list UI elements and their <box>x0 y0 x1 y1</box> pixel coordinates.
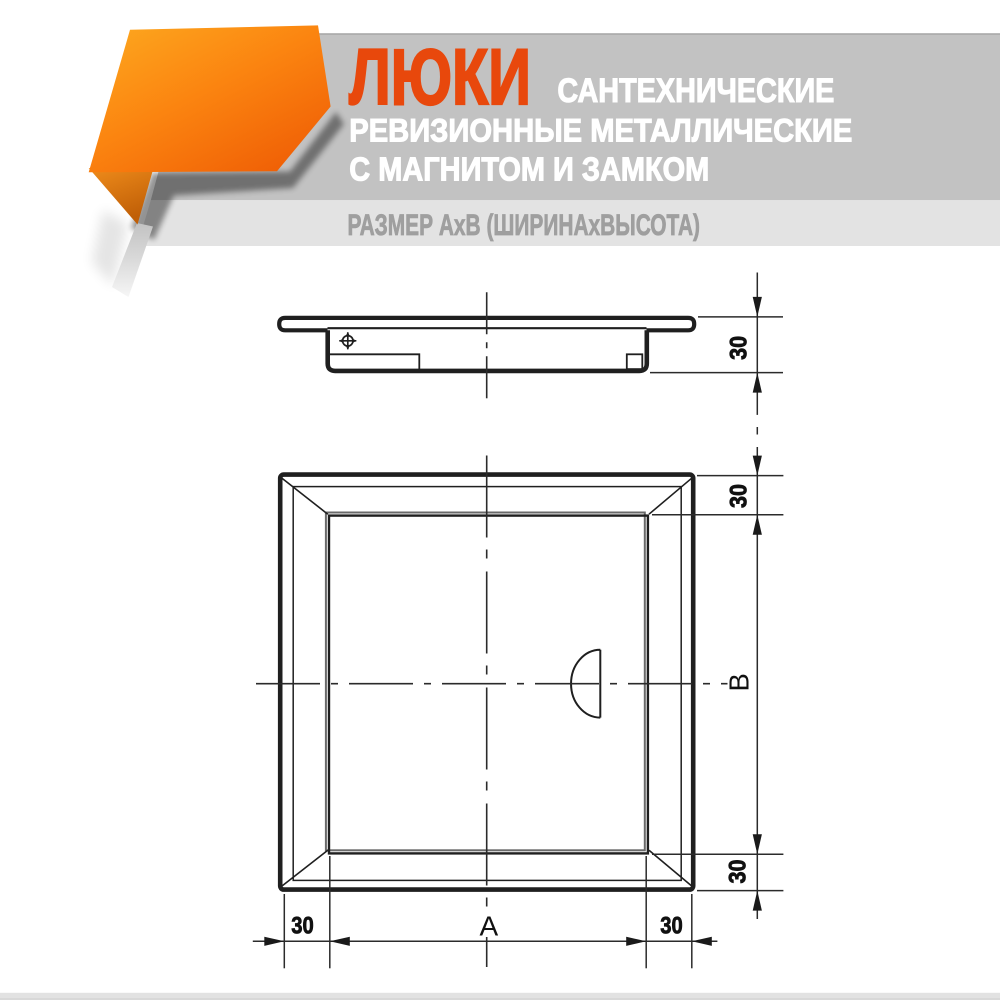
svg-text:30: 30 <box>726 336 753 360</box>
svg-text:30: 30 <box>660 912 683 939</box>
svg-text:B: B <box>723 673 754 691</box>
svg-text:30: 30 <box>291 912 314 939</box>
svg-text:30: 30 <box>725 860 752 884</box>
svg-text:A: A <box>480 911 499 942</box>
svg-text:30: 30 <box>726 484 753 508</box>
svg-text:РЕВИЗИОННЫЕ МЕТАЛЛИЧЕСКИЕ: РЕВИЗИОННЫЕ МЕТАЛЛИЧЕСКИЕ <box>349 112 852 149</box>
svg-text:РАЗМЕР АхВ (ШИРИНАхВЫСОТА): РАЗМЕР АхВ (ШИРИНАхВЫСОТА) <box>348 209 701 242</box>
svg-text:ЛЮКИ: ЛЮКИ <box>349 32 531 121</box>
svg-text:С МАГНИТОМ И ЗАМКОМ: С МАГНИТОМ И ЗАМКОМ <box>349 152 709 189</box>
svg-text:САНТЕХНИЧЕСКИЕ: САНТЕХНИЧЕСКИЕ <box>557 72 834 110</box>
